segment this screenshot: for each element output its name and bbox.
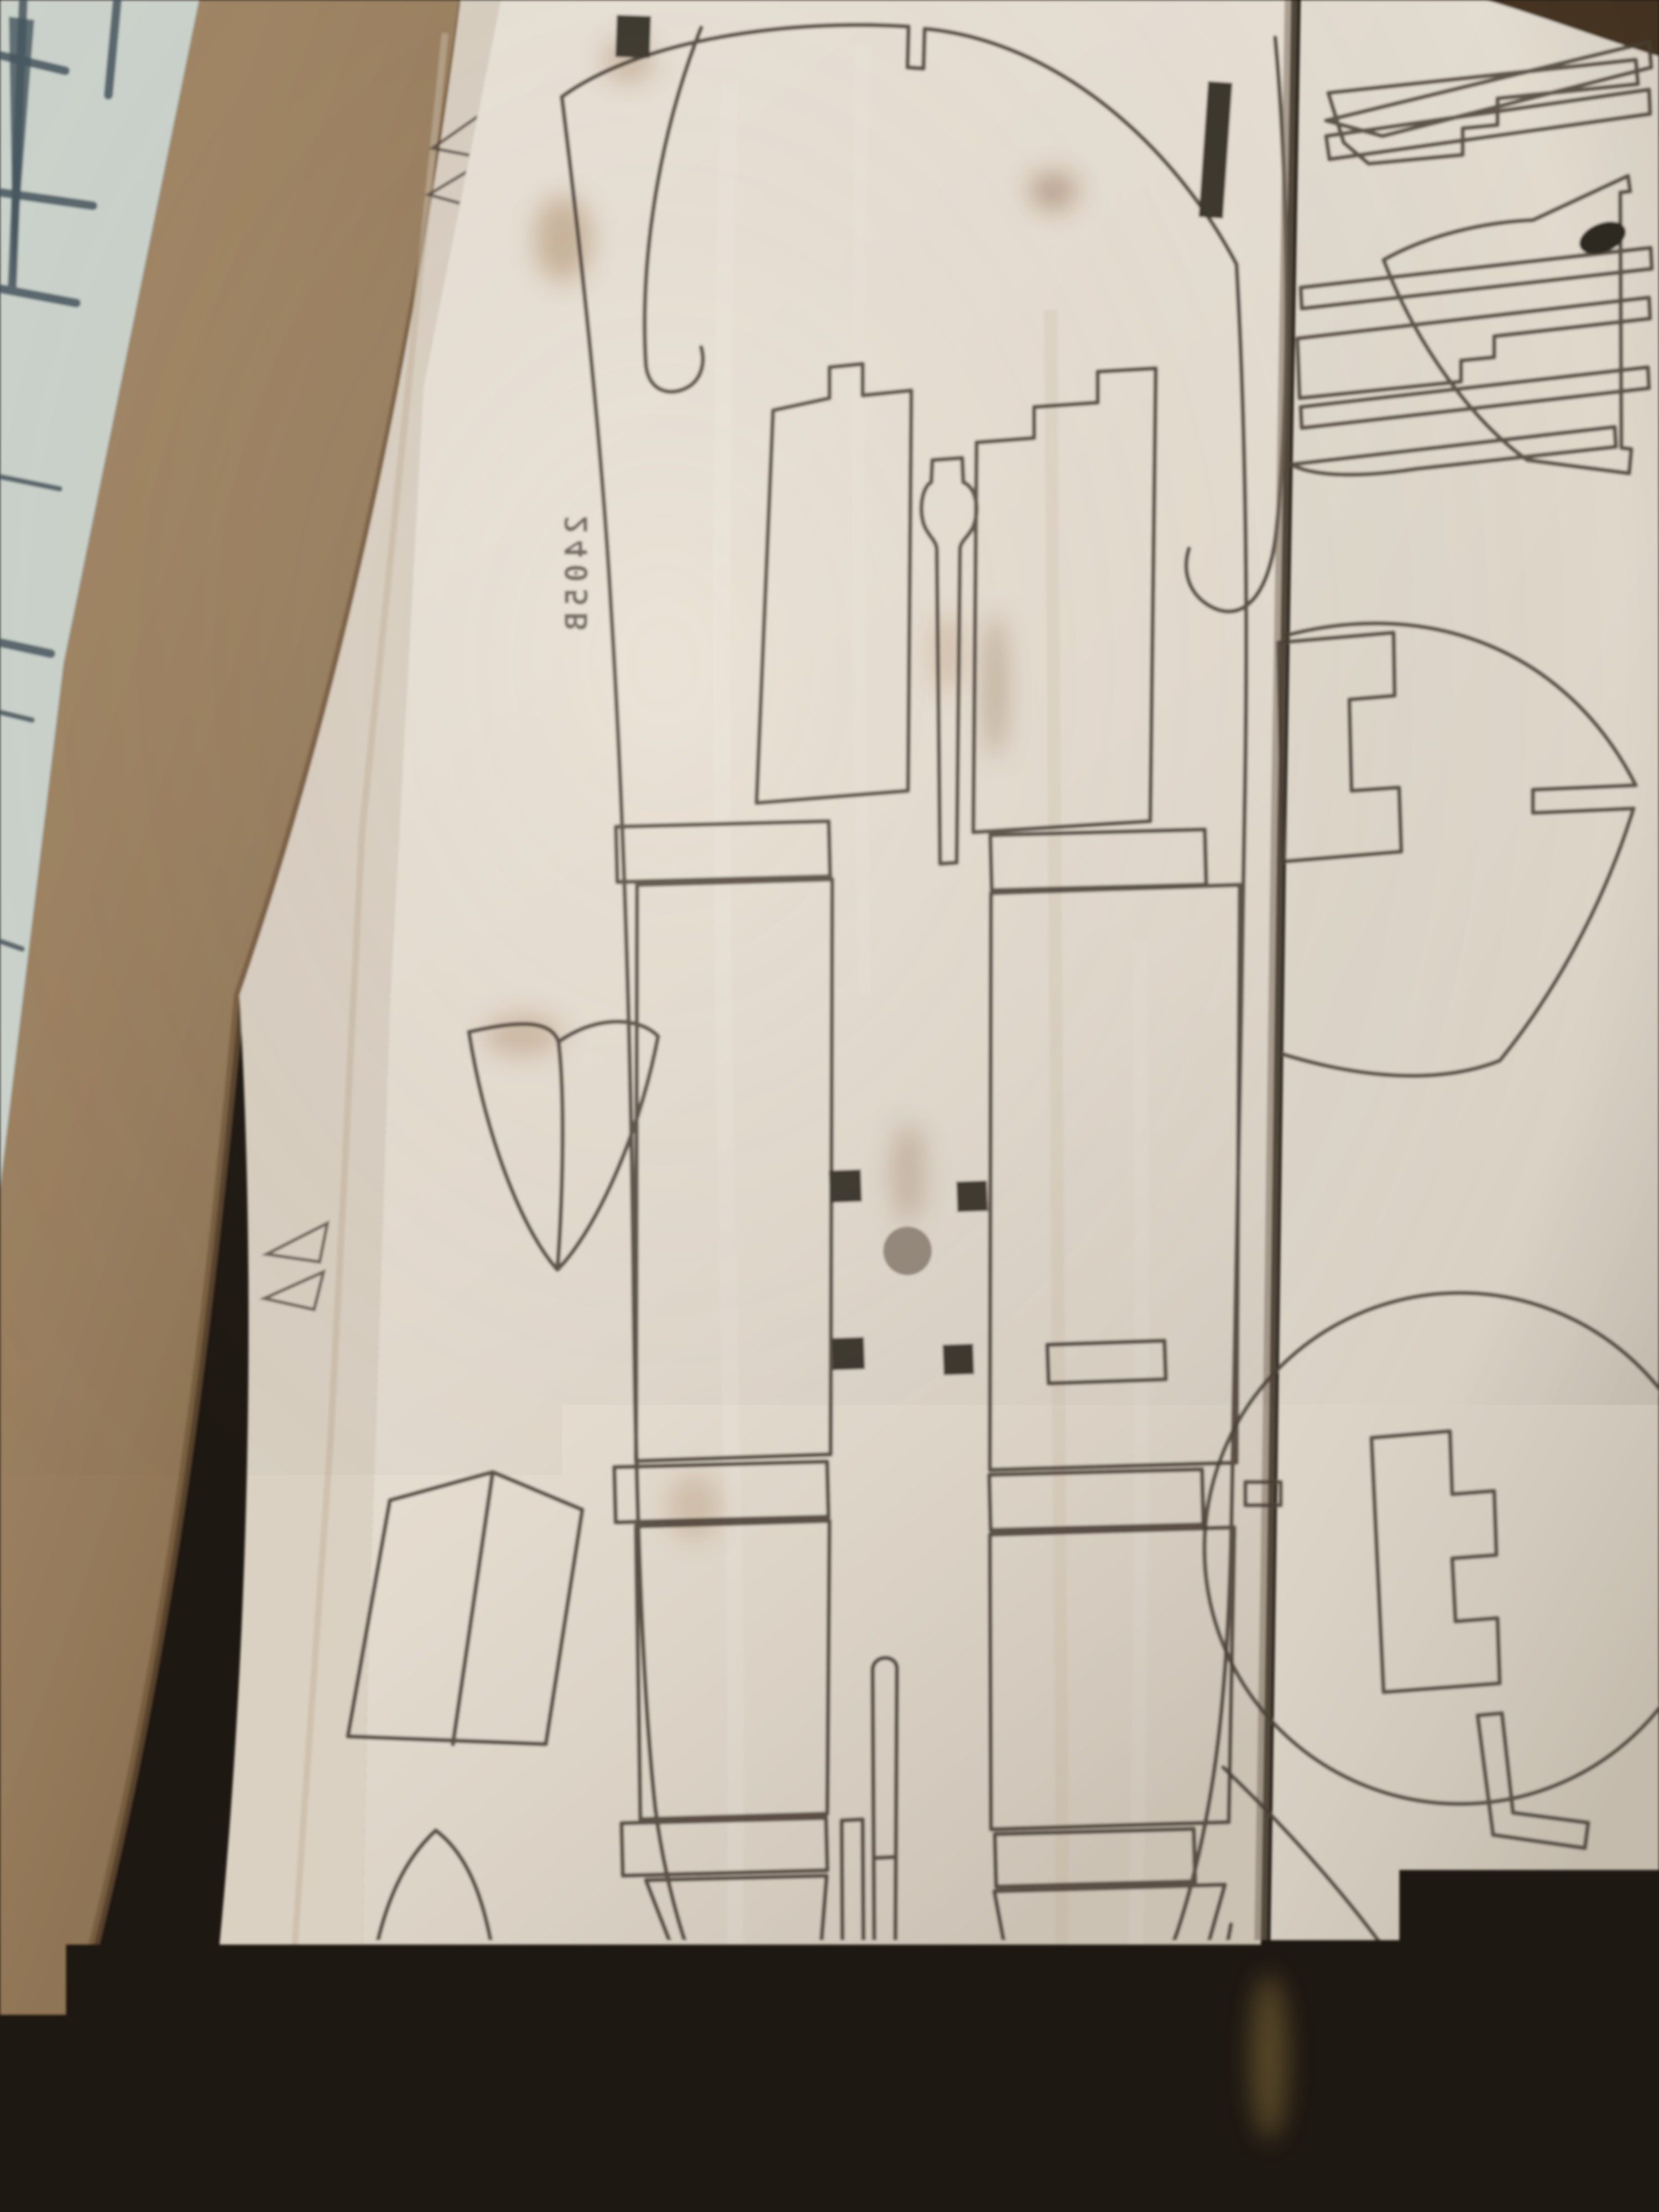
photo-canvas: 2405B: [0, 0, 1659, 2212]
vignette-overlay: [0, 0, 1659, 2212]
